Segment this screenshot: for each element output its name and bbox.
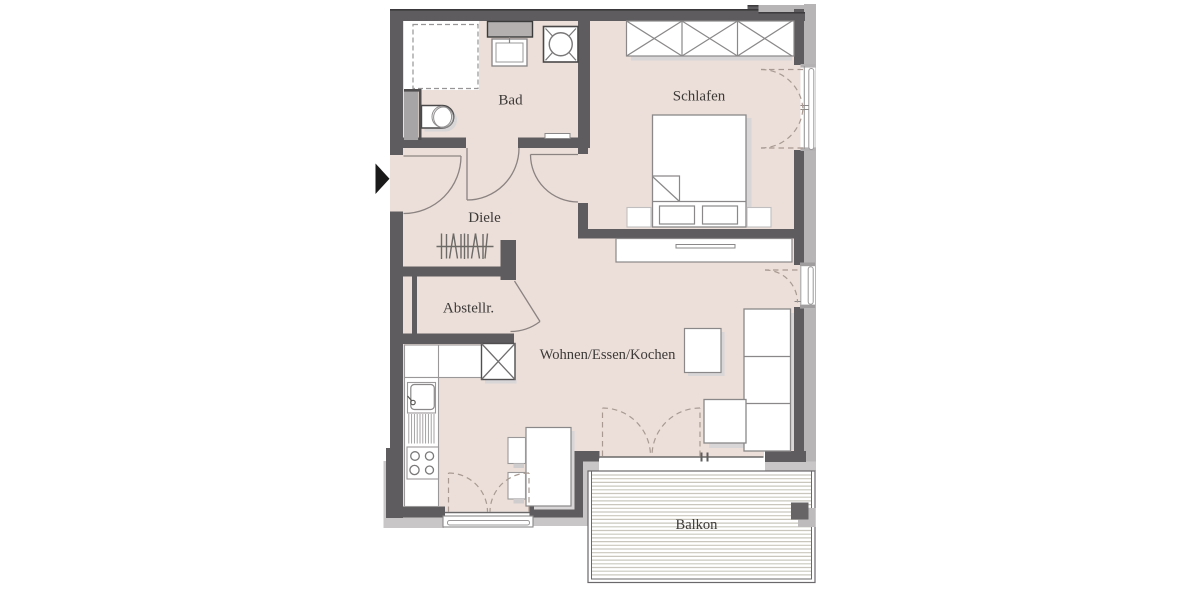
svg-text:Bad: Bad — [498, 93, 523, 109]
svg-text:Diele: Diele — [468, 210, 501, 226]
svg-text:Balkon: Balkon — [676, 517, 719, 533]
svg-text:Abstellr.: Abstellr. — [443, 301, 494, 317]
svg-text:Schlafen: Schlafen — [673, 89, 726, 105]
svg-text:Wohnen/Essen/Kochen: Wohnen/Essen/Kochen — [540, 347, 677, 363]
